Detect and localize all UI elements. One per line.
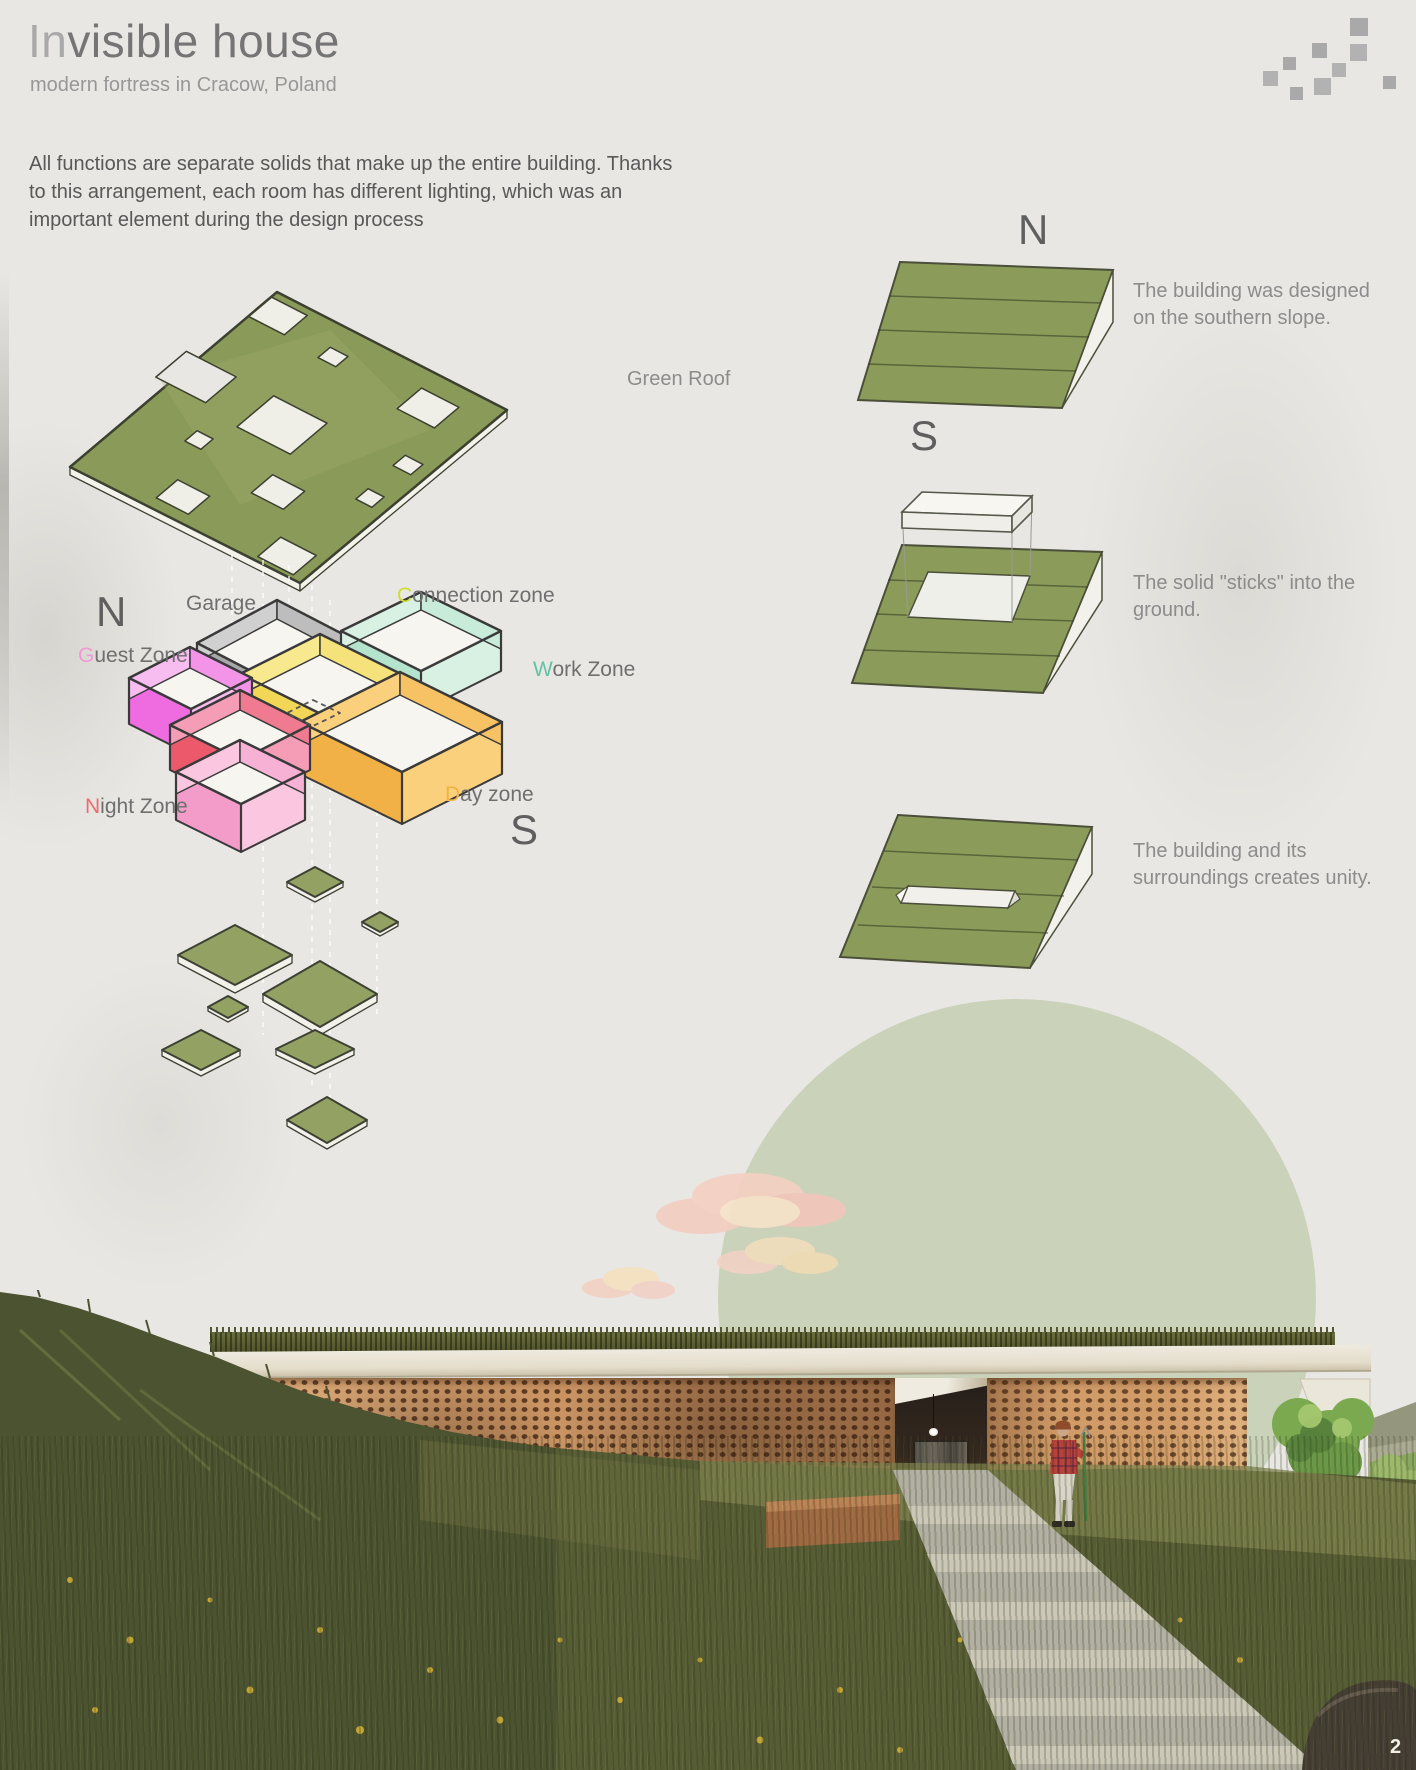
caption-line: surroundings creates unity. [1133,865,1372,892]
connection-zone-label: Connection zone [397,584,555,608]
canopy-return-wall [1300,1379,1370,1418]
night-zone-initial: N [85,795,100,818]
compass-north-slope: N [1018,206,1048,254]
guest-zone-rest: uest Zone [94,644,187,667]
compass-north-exploded: N [96,588,126,636]
work-zone-rest: ork Zone [552,658,635,681]
rendering-entrance [895,1378,987,1546]
title-prefix: In [28,15,67,67]
entrance-floor [895,1533,987,1546]
night-zone-label: Night Zone [85,795,188,819]
work-zone-label: Work Zone [533,658,635,682]
guest-zone-label: Guest Zone [78,644,188,668]
logo-square [1290,87,1303,100]
garage-zone-label: Garage [186,592,256,616]
entrance-glass-door [913,1440,969,1532]
exploded-axonometric-diagram [70,292,507,1149]
distant-hills [1368,1402,1416,1505]
page-subtitle: modern fortress in Cracow, Poland [30,74,337,97]
rendering-brick-facade-left [255,1378,895,1556]
slope-diagram-2 [852,492,1102,693]
rendering-brick-facade-right [987,1378,1247,1560]
night-zone-rest: ight Zone [100,795,188,818]
day-zone-label: Day zone [445,783,534,807]
logo-square [1263,71,1278,86]
meadow-flowers [67,1577,1243,1753]
logo-square [1350,18,1368,36]
compass-south-slope: S [910,412,938,460]
title-rest: visible house [67,15,339,67]
slope-diagram-1 [858,262,1113,408]
connection-zone-rest: onnection zone [412,584,554,607]
watercolor-stain [0,420,180,850]
page-number: 2 [1390,1736,1401,1759]
logo-square [1383,76,1396,89]
intro-line: All functions are separate solids that m… [29,150,769,178]
intro-paragraph: All functions are separate solids that m… [29,150,769,234]
logo-square [1332,63,1346,77]
caption-line: The building was designed [1133,278,1370,305]
pendant-lamp-cord [933,1394,934,1430]
green-roof-label: Green Roof [627,366,730,393]
logo-square [1283,57,1296,70]
caption-line: The solid "sticks" into the [1133,570,1355,597]
slope-diagram-3 [840,815,1092,968]
connection-zone-initial: C [397,584,412,607]
logo-square [1350,44,1367,61]
work-zone-initial: W [533,658,552,681]
guest-zone-initial: G [78,644,94,667]
entrance-ceiling [895,1378,987,1404]
intro-line: to this arrangement, each room has diffe… [29,178,769,206]
presentation-board: Invisible house modern fortress in Craco… [0,0,1416,1770]
logo-square [1314,78,1331,95]
day-zone-rest: ay zone [460,783,534,806]
pendant-lamp [929,1428,938,1436]
day-zone-initial: D [445,783,460,806]
caption-line: ground. [1133,597,1355,624]
page-title: Invisible house [28,14,340,68]
logo-square [1312,43,1327,58]
caption-line: The building and its [1133,838,1372,865]
slope-caption-2: The solid "sticks" into the ground. [1133,570,1355,624]
intro-line: important element during the design proc… [29,206,769,234]
caption-line: on the southern slope. [1133,305,1370,332]
slope-caption-1: The building was designed on the souther… [1133,278,1370,332]
slope-caption-3: The building and its surroundings create… [1133,838,1372,892]
compass-south-exploded: S [510,806,538,854]
watercolor-stain [20,960,300,1290]
right-vegetation [1370,1452,1416,1528]
paper-edge-texture [0,270,9,810]
